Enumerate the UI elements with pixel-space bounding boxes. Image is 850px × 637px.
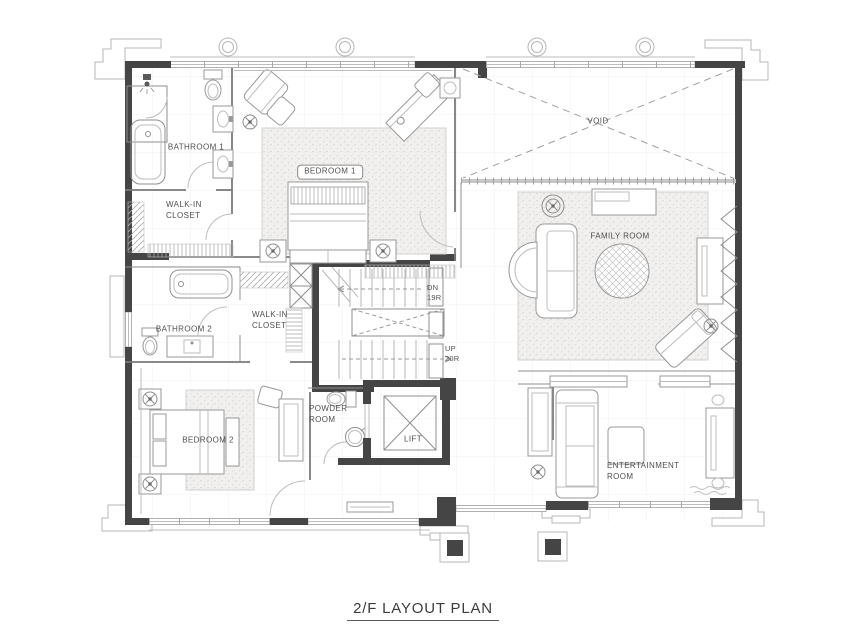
label-bedroom1: BEDROOM 1 xyxy=(297,165,363,180)
label-bedroom2: BEDROOM 2 xyxy=(182,436,234,447)
label-powder-room: POWDER ROOM xyxy=(309,404,347,426)
label-void: VOID xyxy=(587,117,608,128)
label-entertainment-room: ENTERTAINMENT ROOM xyxy=(607,461,679,483)
page-title: 2/F LAYOUT PLAN xyxy=(347,600,499,621)
label-lift: LIFT xyxy=(404,435,422,446)
floor-plan-drawing xyxy=(0,0,850,637)
floor-plan-page: BATHROOM 1 WALK-IN CLOSET BEDROOM 1 VOID… xyxy=(0,0,850,637)
label-bathroom2: BATHROOM 2 xyxy=(156,325,212,336)
label-stairs-down: DN 19R xyxy=(427,283,441,303)
label-family-room: FAMILY ROOM xyxy=(590,232,649,243)
label-walkin-closet2: WALK-IN CLOSET xyxy=(252,310,288,332)
corridor-console xyxy=(347,502,393,512)
label-bathroom1: BATHROOM 1 xyxy=(168,143,224,154)
round-column-icon xyxy=(219,38,654,56)
label-stairs-up: UP 20R xyxy=(445,344,459,364)
label-walkin-closet1: WALK-IN CLOSET xyxy=(166,200,202,222)
